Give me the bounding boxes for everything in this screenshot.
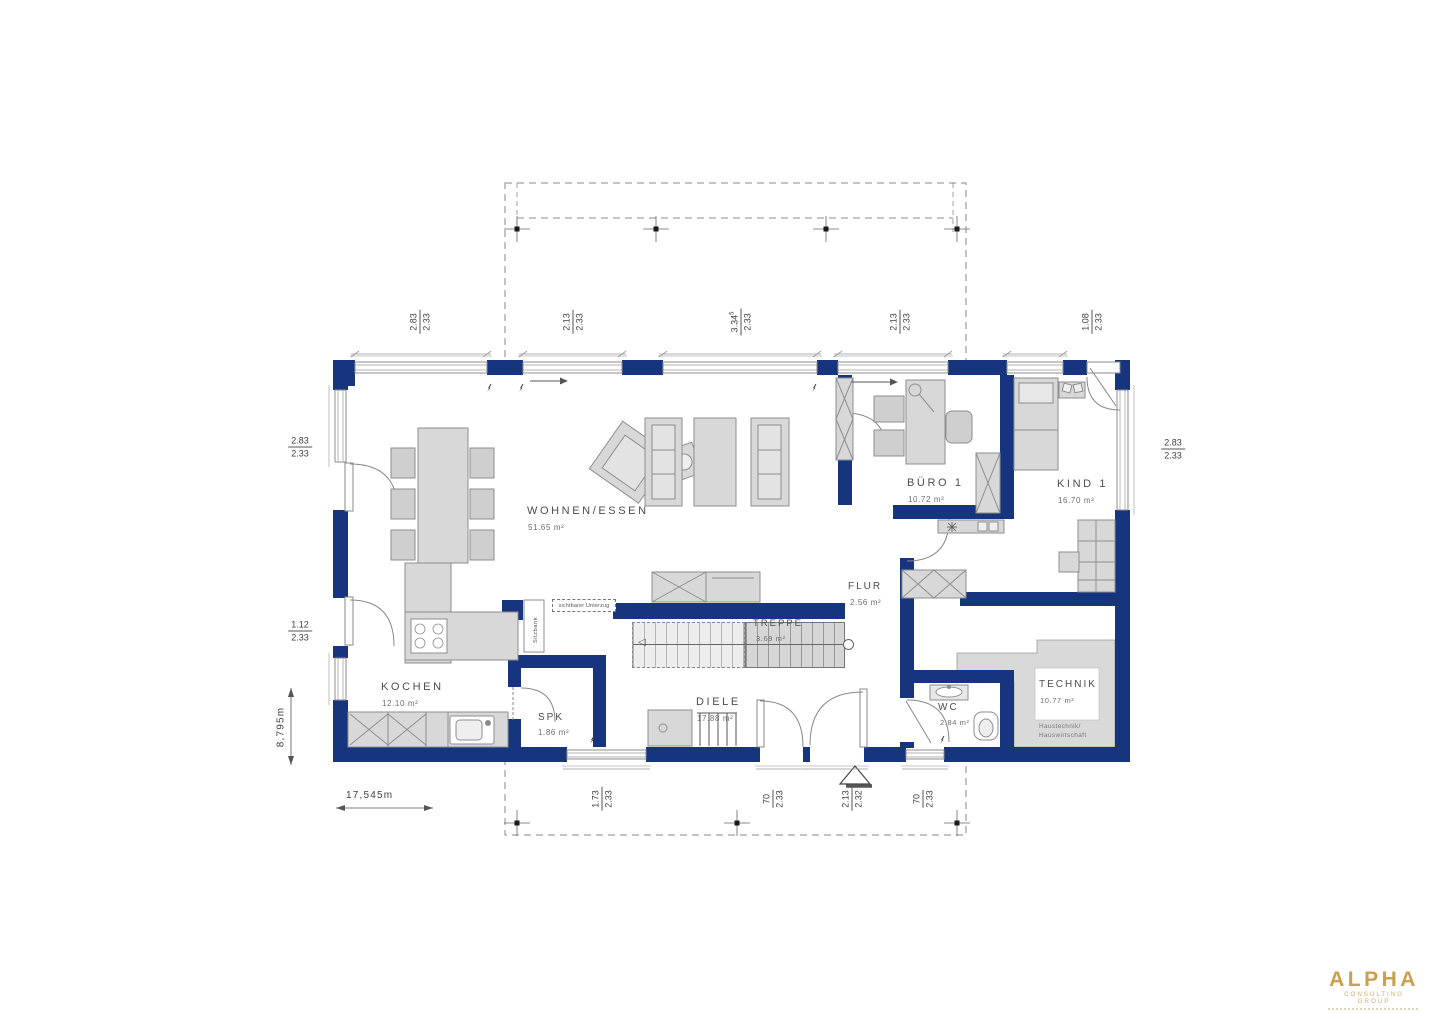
wardrobe <box>836 378 853 460</box>
floorplan-drawing <box>0 0 1440 1019</box>
stairs-direction-arrow: ◁ <box>638 637 646 648</box>
room-area-kochen: 12.10 m² <box>382 699 418 708</box>
dim-bottom-1: 1.73 2.33 <box>591 787 614 811</box>
dim-top-4: 2.13 2.33 <box>889 310 912 334</box>
stairs-lower-flight <box>632 622 745 668</box>
room-area-wohnen: 51.65 m² <box>528 523 564 532</box>
technik-label-card <box>1035 668 1099 720</box>
alpha-logo: ALPHA CONSULTING GROUP <box>1328 969 1420 1010</box>
stairs-center-line <box>633 644 845 645</box>
technik-note-1: Haustechnik/ <box>1039 723 1081 730</box>
room-area-kind: 16.70 m² <box>1058 496 1094 505</box>
room-label-technik: TECHNIK <box>1039 679 1097 690</box>
room-area-diele: 17.88 m² <box>697 714 733 723</box>
room-area-treppe: 3.69 m² <box>756 634 786 643</box>
dim-top-2: 2.13 2.33 <box>562 310 585 334</box>
dim-top-5: 1.08 2.33 <box>1081 310 1104 334</box>
total-height-label: 8,795m <box>276 707 287 748</box>
logo-tagline <box>1328 1008 1420 1010</box>
logo-title: ALPHA <box>1328 969 1420 990</box>
visible-beam-note: sichtbarer Unterzug <box>552 599 616 612</box>
room-label-treppe: TREPPE <box>753 618 803 629</box>
dim-right-1: 2.83 2.33 <box>1161 438 1185 461</box>
floorplan-canvas: ◁ sichtbarer Unterzug Sitzbank WOHNEN/ES… <box>0 0 1440 1019</box>
hall-sideboard <box>648 710 692 746</box>
room-area-buero: 10.72 m² <box>908 495 944 504</box>
room-area-technik: 10.77 m² <box>1040 696 1074 705</box>
room-label-kind: KIND 1 <box>1057 478 1108 490</box>
dim-bottom-2: 70 2.33 <box>762 790 785 808</box>
dim-top-3: 3.345 2.33 <box>728 309 753 336</box>
room-label-flur: FLUR <box>848 581 882 592</box>
dim-left-2: 1.12 2.33 <box>288 620 312 643</box>
dining-table <box>418 428 468 563</box>
wardrobe <box>902 570 966 598</box>
bench-label: Sitzbank <box>533 617 539 643</box>
dim-left-1: 2.83 2.33 <box>288 436 312 459</box>
dim-top-1: 2.83 2.33 <box>409 310 432 334</box>
room-label-diele: DIELE <box>696 696 741 708</box>
room-label-wohnen: WOHNEN/ESSEN <box>527 505 649 517</box>
plant-symbol <box>947 522 957 532</box>
room-area-wc: 2.84 m² <box>940 718 970 727</box>
small-table <box>1059 552 1079 572</box>
stairs-landing-post <box>843 639 854 650</box>
room-area-flur: 2.56 m² <box>850 598 881 607</box>
desk <box>906 380 945 464</box>
room-area-spk: 1.86 m² <box>538 728 569 737</box>
technik-note-2: Hauswirtschaft <box>1039 732 1087 739</box>
room-label-buero: BÜRO 1 <box>907 477 964 489</box>
total-width-label: 17,545m <box>346 790 393 801</box>
office-chair <box>946 411 972 443</box>
logo-subtitle: CONSULTING GROUP <box>1328 991 1420 1005</box>
cooktop <box>411 619 447 653</box>
coffee-table <box>694 418 736 506</box>
dim-bottom-3: 2.13 2.32 <box>841 787 864 811</box>
room-label-spk: SPK <box>538 712 564 723</box>
dim-bottom-4: 70 2.33 <box>912 790 935 808</box>
room-label-wc: WC <box>938 702 959 713</box>
room-label-kochen: KOCHEN <box>381 681 444 693</box>
